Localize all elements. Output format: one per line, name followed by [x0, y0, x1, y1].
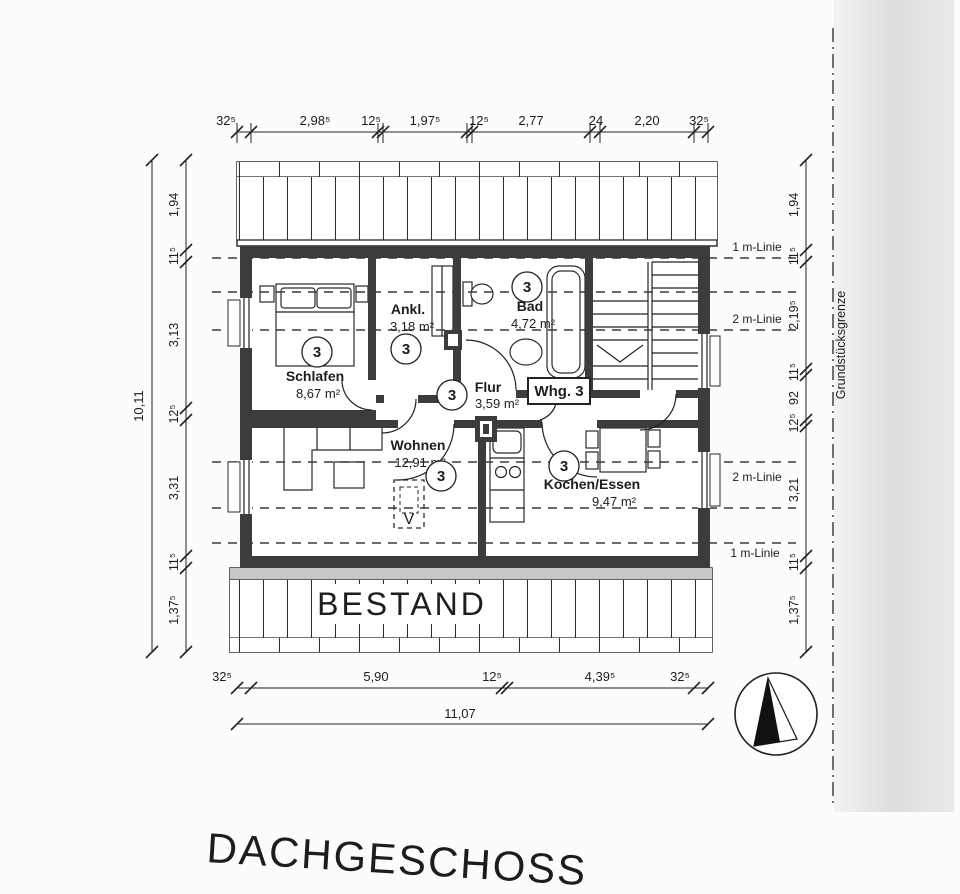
dim-left: 1,37⁵ — [167, 595, 181, 625]
dim-right: 2,19⁵ — [787, 300, 801, 330]
room-name-ankl: Ankl. — [391, 301, 425, 317]
nightstand-right — [356, 286, 368, 302]
dim-right: 1,37⁵ — [787, 595, 801, 625]
dim-right: 3,21 — [787, 478, 801, 502]
unit-circle-flur: 3 — [437, 380, 467, 410]
dim-bottom-total: 11,07 — [444, 706, 476, 721]
roof-band-bottom: BESTAND — [230, 568, 712, 652]
dim-right: 92 — [787, 391, 801, 405]
toilet — [463, 282, 493, 306]
dim-bottom: 4,39⁵ — [585, 669, 616, 684]
height-line-label: 1 m-Linie — [732, 240, 782, 254]
unit-circle-bad: 3 — [512, 272, 542, 302]
dim-right: 11⁵ — [787, 553, 801, 571]
dim-top: 2,98⁵ — [300, 113, 331, 128]
unit-number: 3 — [437, 468, 445, 485]
room-name-wohnen: Wohnen — [391, 437, 446, 453]
dim-top: 1,97⁵ — [410, 113, 441, 128]
unit-number: 3 — [402, 341, 410, 358]
window-bedroom — [228, 298, 252, 348]
dim-left: 11⁵ — [167, 247, 181, 265]
dim-right: 11⁵ — [787, 247, 801, 265]
room-name-schlafen: Schlafen — [286, 368, 344, 384]
dim-top: 12⁵ — [469, 113, 489, 128]
apartment-label: Whg. 3 — [534, 383, 583, 400]
floor-plan-drawing: Grundstücksgrenze BESTAND — [0, 0, 960, 894]
height-line-label: 2 m-Linie — [732, 312, 782, 326]
unit-number: 3 — [448, 387, 456, 404]
unit-circle-schlafen: 3 — [302, 337, 332, 367]
dim-top: 32⁵ — [689, 113, 709, 128]
dim-right: 11⁵ — [787, 363, 801, 381]
dim-top: 12⁵ — [361, 113, 381, 128]
dim-left: 3,13 — [167, 323, 181, 347]
dim-right: 12⁵ — [787, 413, 801, 432]
dim-bottom: 32⁵ — [670, 669, 690, 684]
dim-bottom: 32⁵ — [212, 669, 232, 684]
sink — [510, 339, 542, 365]
dim-right: 1,94 — [787, 193, 801, 217]
dim-left: 1,94 — [167, 193, 181, 217]
dim-top: 2,77 — [518, 113, 543, 128]
window-living — [228, 460, 252, 514]
dim-left-total: 10,11 — [131, 390, 146, 422]
room-area-flur: 3,59 m² — [475, 396, 520, 411]
dim-top: 32⁵ — [216, 113, 236, 128]
skylight-mark: V — [404, 511, 415, 528]
scan-edge-band — [834, 0, 954, 812]
chair — [648, 430, 660, 447]
burner — [510, 467, 521, 478]
room-name-flur: Flur — [475, 379, 502, 395]
chair — [586, 431, 598, 448]
dining-table — [600, 428, 646, 472]
dim-top: 2,20 — [634, 113, 659, 128]
dim-left: 12⁵ — [167, 404, 181, 423]
bestand-label: BESTAND — [317, 586, 487, 622]
wardrobe — [432, 266, 453, 336]
floor-plan-page: Grundstücksgrenze BESTAND — [0, 0, 960, 894]
unit-number: 3 — [560, 458, 568, 475]
unit-circle-ankl: 3 — [391, 334, 421, 364]
dim-bottom: 12⁵ — [482, 669, 502, 684]
property-boundary-label: Grundstücksgrenze — [834, 291, 848, 399]
burner — [496, 467, 507, 478]
dim-top: 24 — [589, 113, 603, 128]
unit-circle-wohnen: 3 — [426, 461, 456, 491]
height-line-label: 2 m-Linie — [732, 470, 782, 484]
dim-bottom: 5,90 — [363, 669, 388, 684]
room-area-ankl: 3,18 m² — [390, 319, 435, 334]
chair — [586, 452, 598, 469]
dim-left: 11⁵ — [167, 553, 181, 571]
nightstand-left — [260, 286, 274, 302]
north-arrow — [735, 673, 817, 755]
unit-number: 3 — [313, 344, 321, 361]
roof-band-top — [237, 162, 717, 246]
room-area-schlafen: 8,67 m² — [296, 386, 341, 401]
window-kitchen — [698, 452, 720, 508]
room-area-bad: 4,72 m² — [511, 316, 556, 331]
window-stair — [698, 334, 720, 388]
unit-circle-kochen: 3 — [549, 451, 579, 481]
unit-number: 3 — [523, 279, 531, 296]
chair — [648, 451, 660, 468]
room-area-kochen: 9,47 m² — [592, 494, 637, 509]
height-line-label: 1 m-Linie — [730, 546, 780, 560]
coffee-table — [334, 462, 364, 488]
dim-left: 3,31 — [167, 476, 181, 500]
